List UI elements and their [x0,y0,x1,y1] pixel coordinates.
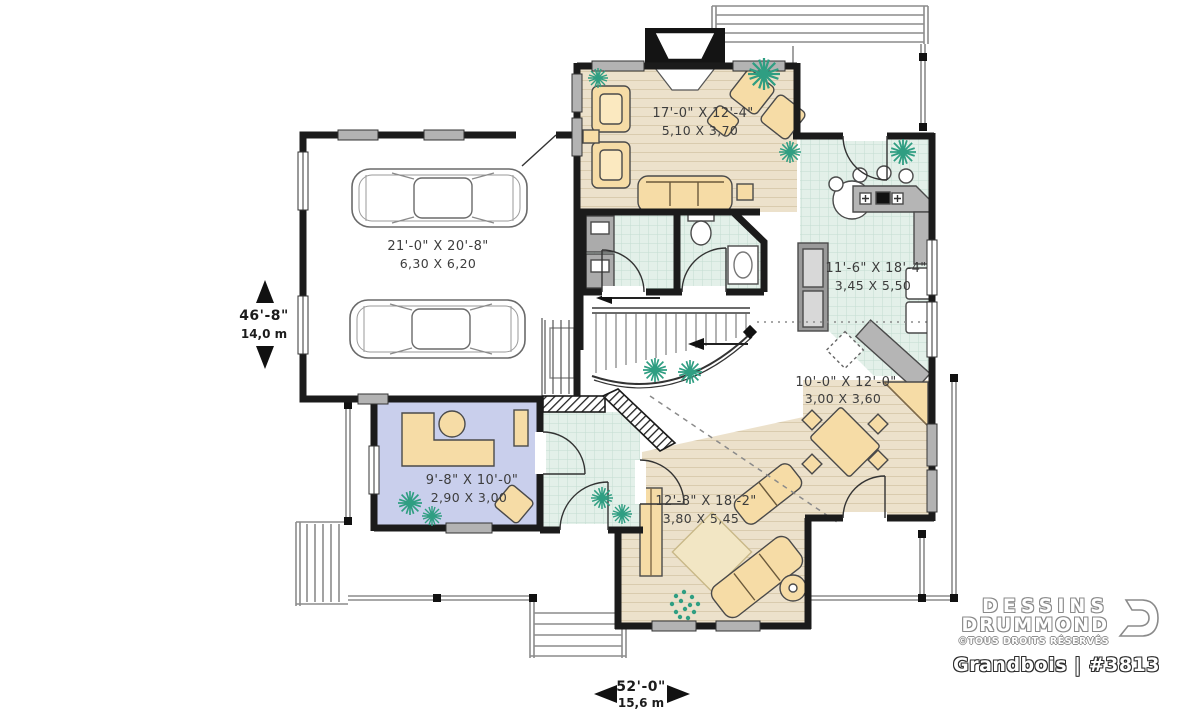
kitchen-label-metric: 3,45 X 5,50 [835,278,912,293]
garage-cars [350,169,574,378]
office-label: 9'-8" X 10'-0" [426,473,519,488]
family-room-label-metric: 3,80 X 5,45 [663,511,740,526]
living-room-label-metric: 5,10 X 3,70 [662,123,739,138]
dim-arrow-left [594,685,617,703]
side-dimension-metric: 14,0 m [241,327,287,341]
dining-room-label: 10'-0" X 12'-0" [795,375,896,390]
dim-arrow-up [256,280,274,303]
floor-plan-page: 21'-0" X 20'-8" 6,30 X 6,20 17'-0" X 12'… [0,0,1200,711]
laundry-fixtures [586,216,614,288]
dim-arrow-down [256,346,274,369]
brand-name-line2: DRUMMOND [958,616,1109,635]
family-room-label: 12'-8" X 18'-2" [655,494,756,509]
front-dimension-metric: 15,6 m [618,696,664,710]
garage-label: 21'-0" X 20'-8" [387,239,488,254]
garage-label-metric: 6,30 X 6,20 [400,256,477,271]
office-label-metric: 2,90 X 3,00 [431,490,508,505]
front-dimension: 52'-0" [616,679,666,695]
brand-rights: ©TOUS DROITS RÉSERVÉS [958,637,1109,647]
kitchen-label: 11'-6" X 18'-4" [825,261,926,276]
plan-number-label: Grandbois | #3813 [953,654,1160,676]
living-room-label: 17'-0" X 12'-4" [652,106,753,121]
dim-arrow-right [667,685,690,703]
side-dimension: 46'-8" [239,308,289,324]
branding-block: DESSINS DRUMMOND ©TOUS DROITS RÉSERVÉS G… [953,597,1160,676]
drummond-d-logo-icon [1116,597,1160,639]
dining-room-label-metric: 3,00 X 3,60 [805,391,882,406]
